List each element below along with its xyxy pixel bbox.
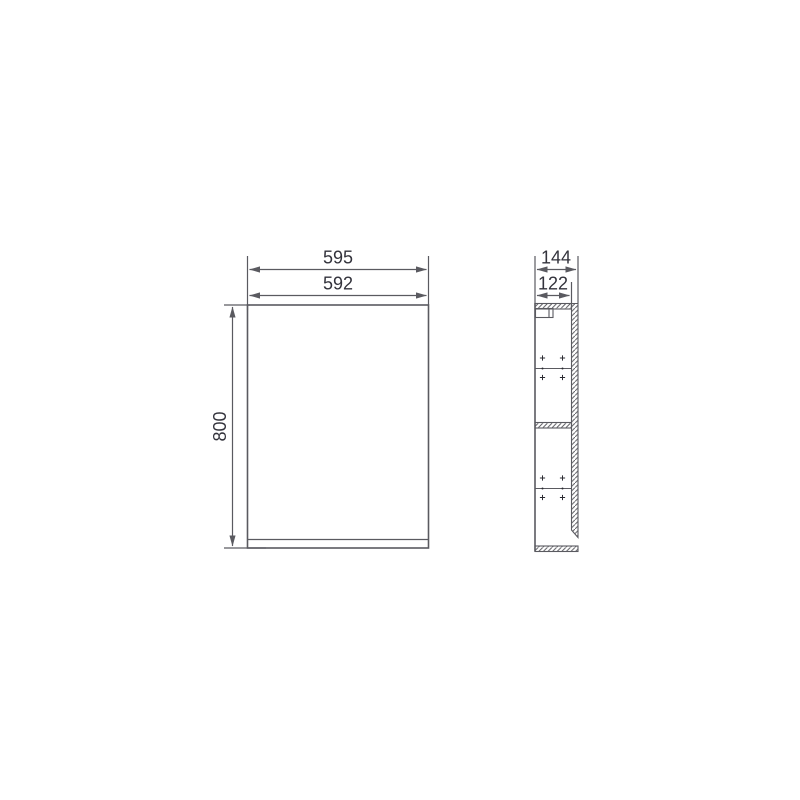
side-bottom-panel-section: [535, 546, 578, 552]
side-drill-dot-2: [562, 368, 564, 370]
side-drill-cross-3: [540, 375, 545, 380]
side-overall-depth-label: 144: [541, 248, 571, 268]
front-door-width-label: 592: [323, 274, 353, 294]
side-hanger-bracket: [536, 309, 554, 318]
side-drill-cross-5: [540, 475, 545, 480]
front-view: 595 592 800: [210, 248, 429, 549]
side-drill-dot-1: [542, 368, 544, 370]
side-drill-cross-8: [560, 495, 565, 500]
side-drill-cross-6: [560, 475, 565, 480]
side-drill-cross-4: [560, 375, 565, 380]
front-cabinet-outline: [248, 305, 429, 548]
side-drill-dot-3: [542, 488, 544, 490]
side-back-panel-section: [572, 304, 579, 538]
side-middle-shelf-section: [535, 423, 572, 429]
technical-drawing-canvas: 595 592 800 144 122: [0, 0, 800, 800]
side-drill-dot-4: [562, 488, 564, 490]
front-overall-width-label: 595: [323, 248, 353, 268]
cabinet-dimension-drawing: 595 592 800 144 122: [0, 0, 800, 800]
front-height-label: 800: [210, 411, 230, 441]
side-body-depth-label: 122: [538, 274, 568, 294]
side-drill-cross-2: [560, 355, 565, 360]
side-view: 144 122: [535, 248, 578, 552]
side-drill-cross-1: [540, 355, 545, 360]
side-drill-cross-7: [540, 495, 545, 500]
